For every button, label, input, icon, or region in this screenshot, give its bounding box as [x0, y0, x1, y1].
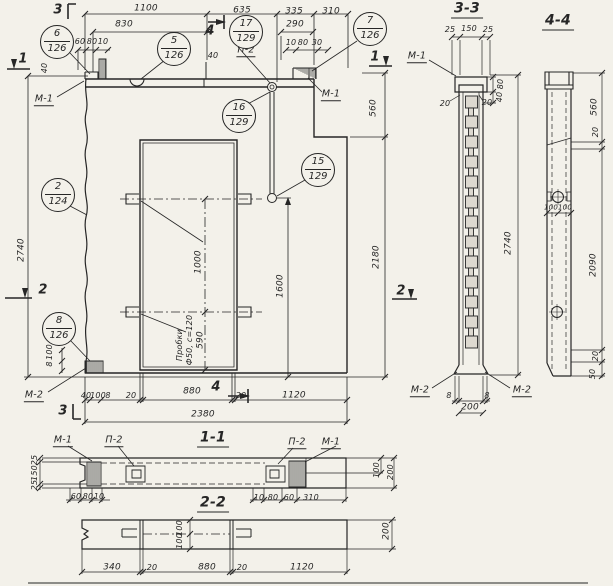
cut-mark-label: 3 — [53, 4, 62, 17]
callout-detail-number: 7 — [367, 13, 373, 28]
dim-label: 10 — [98, 38, 109, 46]
dim-label: 40 — [208, 52, 219, 60]
embed-ref-label: М-1 — [407, 51, 427, 63]
dim-label: 30 — [312, 39, 323, 47]
dim-label: 880 — [183, 388, 201, 397]
dim-label: 25 — [31, 455, 39, 466]
embed-ref-label: П-2 — [104, 435, 123, 447]
dim-label: 20 — [592, 127, 600, 138]
dim-label: 2380 — [191, 411, 215, 420]
dim-label: 100 — [90, 392, 106, 400]
embed-ref-label: П-2 — [287, 437, 306, 449]
note-plugs-line1: Пробки — [176, 329, 184, 361]
dim-label: 560 — [591, 98, 600, 116]
callout-sheet-number: 126 — [46, 328, 72, 343]
cut-mark-label: 4 — [211, 381, 220, 394]
detail-callout: 17129 — [229, 15, 263, 49]
dim-label: 20 — [482, 99, 493, 107]
dim-label: 60 — [71, 493, 82, 501]
callout-detail-number: 16 — [233, 100, 246, 115]
dim-label: 10 — [286, 39, 297, 47]
dim-label: 8 — [46, 361, 54, 366]
dim-label: 200 — [461, 404, 479, 413]
dim-label: 1120 — [282, 392, 306, 401]
detail-callout: 15129 — [301, 153, 335, 187]
dim-label: 80 — [298, 39, 309, 47]
dim-label: 100 — [544, 205, 558, 212]
detail-callout: 2124 — [41, 178, 75, 212]
dim-label: 880 — [198, 564, 216, 573]
detail-callout: 6126 — [40, 25, 74, 59]
dim-label: 20 — [592, 351, 600, 362]
dim-label: 310 — [303, 494, 319, 502]
embed-ref-label: М-2 — [512, 385, 532, 397]
callout-sheet-number: 126 — [44, 41, 70, 56]
callout-detail-number: 15 — [312, 154, 325, 169]
dim-label: 635 — [233, 7, 251, 16]
cut-mark-label: 4 — [205, 25, 214, 38]
detail-callout: 5126 — [157, 32, 191, 66]
callout-sheet-number: 129 — [305, 169, 331, 184]
dim-label: 2090 — [590, 253, 599, 277]
dim-label: 60 — [284, 494, 295, 502]
dim-label: 20 — [237, 564, 248, 572]
dim-label: 100 — [176, 533, 184, 549]
dim-label: 1000 — [195, 250, 204, 274]
dim-label: 335 — [285, 8, 303, 17]
callout-sheet-number: 129 — [233, 31, 259, 46]
dim-label: 25 — [483, 26, 494, 34]
embed-ref-label: М-1 — [34, 94, 54, 106]
detail-callout: 16129 — [222, 99, 256, 133]
detail-callout: 7126 — [353, 12, 387, 46]
dim-label: 150 — [31, 465, 39, 481]
dim-label: 100 — [558, 205, 572, 212]
dim-label: 1600 — [277, 274, 286, 298]
dim-label: 200 — [387, 464, 395, 480]
section-title-4-4: 4-4 — [542, 14, 574, 31]
callout-sheet-number: 124 — [45, 194, 71, 209]
dim-label: 80 — [83, 493, 94, 501]
dim-label: 8 — [484, 392, 489, 400]
dim-label: 830 — [115, 21, 133, 30]
note-plugs-line2: Ф50, с=120 — [186, 315, 194, 366]
callout-sheet-number: 129 — [226, 115, 252, 130]
drawing-sheet: 1100635335310830290608010108030404027401… — [0, 0, 613, 586]
callout-detail-number: 2 — [55, 179, 61, 194]
dim-label: 40 — [496, 92, 504, 103]
dim-label: 20 — [147, 564, 158, 572]
section-title-2-2: 2-2 — [197, 496, 229, 513]
callout-sheet-number: 126 — [161, 48, 187, 63]
cut-mark-label: 2 — [396, 285, 405, 298]
dim-label: 25 — [445, 26, 456, 34]
dim-label: 100 — [46, 344, 54, 360]
dim-label: 20 — [440, 100, 451, 108]
detail-callout: 8126 — [42, 312, 76, 346]
cut-mark-label: 3 — [58, 405, 67, 418]
dim-label: 200 — [383, 522, 392, 540]
dim-label: 310 — [322, 8, 340, 17]
dim-label: 100 — [373, 462, 381, 478]
callout-sheet-number: 126 — [357, 28, 383, 43]
dim-label: 80 — [497, 79, 505, 90]
dim-label: 2180 — [373, 245, 382, 269]
dim-label: 150 — [461, 25, 477, 33]
embed-ref-label: М-1 — [321, 89, 341, 101]
dim-label: 80 — [268, 494, 279, 502]
dim-label: 10 — [254, 494, 265, 502]
callout-detail-number: 6 — [54, 26, 60, 41]
dim-label: 2740 — [505, 231, 514, 255]
dim-label: 20 — [126, 392, 137, 400]
dim-label: 10 — [94, 493, 105, 501]
callout-detail-number: 17 — [240, 16, 253, 31]
section-title-1-1: 1-1 — [197, 431, 229, 448]
callout-detail-number: 8 — [56, 313, 62, 328]
embed-ref-label: М-2 — [24, 390, 44, 402]
dim-label: 20 — [236, 392, 247, 400]
embed-ref-label: М-1 — [321, 437, 341, 449]
cut-mark-label: 1 — [18, 53, 27, 66]
dim-label: 8 — [446, 392, 451, 400]
cut-mark-label: 2 — [38, 284, 47, 297]
dim-label: 40 — [41, 63, 49, 74]
annotation-layer: 1100635335310830290608010108030404027401… — [0, 0, 613, 586]
dim-label: 560 — [370, 99, 379, 117]
dim-label: 50 — [589, 369, 597, 380]
dim-label: 80 — [87, 38, 98, 46]
embed-ref-label: М-2 — [410, 385, 430, 397]
dim-label: 590 — [197, 331, 206, 349]
embed-ref-label: М-1 — [53, 435, 73, 447]
dim-label: 340 — [103, 564, 121, 573]
dim-label: 1120 — [290, 564, 314, 573]
cut-mark-label: 1 — [370, 51, 379, 64]
dim-label: 8 — [105, 392, 110, 400]
dim-label: 2740 — [18, 238, 27, 262]
section-title-3-3: 3-3 — [451, 2, 483, 19]
callout-detail-number: 5 — [171, 33, 177, 48]
dim-label: 25 — [31, 480, 39, 491]
dim-label: 290 — [286, 21, 304, 30]
dim-label: 1100 — [134, 5, 158, 14]
dim-label: 60 — [75, 38, 86, 46]
